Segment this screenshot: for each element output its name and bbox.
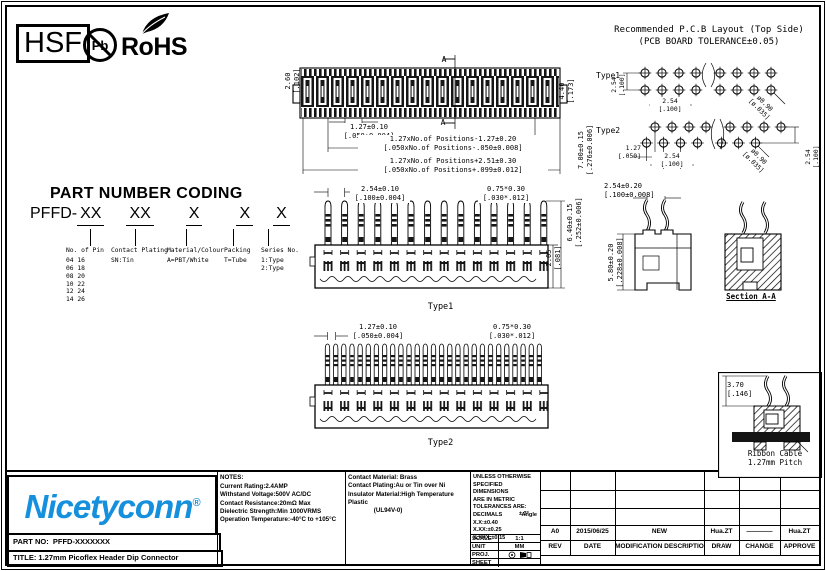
rev-draw-value: Hua.ZT (704, 529, 739, 536)
rev-hline-3 (540, 525, 819, 526)
notes-body: Current Rating:2.4AMP Withstand Voltage:… (220, 483, 346, 525)
legend-col2-lines: SN:Tin (111, 257, 134, 265)
rev-approve-value: Hua.ZT (780, 529, 819, 536)
hsf-logo: HSF (16, 24, 90, 63)
code-seg-packing: X (236, 203, 253, 226)
rev-header-date: DATE (570, 544, 615, 551)
ribbon-dim: 3.70 [.146] (727, 381, 757, 399)
rev-vline-5 (780, 472, 781, 555)
pcb-type2-label: Type2 (596, 126, 630, 136)
title-label: TITLE: (13, 553, 36, 562)
legend-col1-lines: 04 16 06 18 08 20 10 22 12 24 14 26 (66, 257, 85, 304)
code-leader-5 (268, 229, 269, 246)
legend-col4-lines: T=Tube (224, 257, 247, 265)
brand-reg-mark: ® (192, 497, 199, 509)
section-label: Section A-A (716, 292, 786, 301)
type1-pin-dim: 0.75*0.30 [.030*.012] (478, 185, 534, 203)
brand-text: Nicetyconn (25, 488, 193, 525)
part-number-code: PFFD-XXXXXXX (30, 203, 290, 226)
type1-height-dim: 6.40±0.15 [.252±0.006] (566, 195, 584, 250)
code-seg-plating: XX (126, 203, 153, 226)
rev-desc-value: NEW (615, 529, 704, 536)
legend-col3-title: Material/Colour (167, 247, 224, 255)
rev-hline-5 (540, 555, 819, 556)
title-block: Nicetyconn® PART NO: PFFD-XXXXXXX TITLE:… (7, 470, 819, 566)
dim-top-width: 4.40 [.173] (558, 72, 576, 110)
type1-pitch-dim: 2.54±0.10 [.100±0.004] (350, 185, 410, 203)
code-leader-1 (90, 229, 91, 246)
pcb-t2-row-pitch: 2.54 [.100] (804, 142, 820, 172)
section-aa-view (725, 202, 781, 290)
rev-header-rev: REV (540, 544, 570, 551)
brand-logo: Nicetyconn® (9, 477, 215, 533)
type2-pitch-dim: 1.27±0.10 [.050±0.004] (348, 323, 408, 341)
legend-col5-lines: 1:Type 2:Type (261, 257, 284, 273)
dim-total-height: 7.00±0.15 [.276±0.006] (577, 115, 595, 185)
leaf-icon (139, 11, 173, 36)
type2-body (310, 385, 550, 428)
section-top-dim: 2.54±0.20 [.100±0.008] (604, 182, 666, 200)
pcb-title-line2: (PCB BOARD TOLERANCE±0.05) (596, 37, 822, 48)
type1-label: Type1 (418, 302, 463, 312)
code-leader-3 (186, 229, 187, 246)
section-views-drawing (603, 196, 823, 308)
code-leader-4 (233, 229, 234, 246)
code-leader-2 (135, 229, 136, 246)
type2-label: Type2 (418, 438, 463, 448)
pcb-t1-col-pitch: 2.54 [.100] (650, 97, 690, 113)
coding-title: PART NUMBER CODING (50, 185, 243, 203)
legend-col2-title: Contact Plating (111, 247, 168, 255)
rev-date-value: 2015/06/25 (570, 529, 615, 536)
part-no-label: PART NO: (13, 537, 49, 546)
part-no-value: PFFD-XXXXXXX (53, 537, 110, 546)
materials-body: Contact Material: Brass Contact Plating:… (348, 474, 472, 516)
dim-positions-2: 1.27xNo.of Positions+2.51±0.30 [.050xNo.… (358, 157, 548, 175)
legend-col1-title: No. of Pin (66, 247, 104, 255)
rev-header-change: CHANGE (739, 544, 780, 551)
type1-pins (325, 201, 547, 245)
sheet-row: SHEET (470, 558, 540, 567)
title-value: 1.27mm Picoflex Header Dip Connector (38, 553, 178, 562)
code-seg-pins: XX (77, 203, 104, 226)
rev-change-value: ———— (739, 529, 780, 536)
tolerance-header: UNLESS OTHERWISE SPECIFIED DIMENSIONS AR… (473, 474, 537, 512)
type1-body (310, 245, 550, 288)
section-marker-bottom: A (437, 118, 449, 128)
sheet-label: SHEET (470, 559, 499, 567)
ribbon-label: Ribbon Cable 1.27mm Pitch (737, 449, 813, 468)
rev-vline-4 (739, 472, 740, 555)
title-row: TITLE: 1.27mm Picoflex Header Dip Connec… (7, 550, 223, 567)
code-seg-material: X (186, 203, 203, 226)
side-profile-view (617, 196, 691, 290)
type1-body-dim: 2.05 [.081] (545, 244, 563, 272)
col-divider-4 (540, 472, 541, 566)
brand-box: Nicetyconn® (7, 475, 217, 535)
rev-hline-4 (540, 540, 819, 541)
datasheet-page: HSF Pb RoHS (0, 0, 826, 571)
pcb-t2-offset: 1.27 [.050] (613, 144, 641, 160)
type2-drawing (300, 328, 592, 453)
pcb-t1-row-pitch: 2.54 [.100] (610, 70, 626, 100)
code-seg-series: X (273, 203, 290, 226)
rev-hline-2 (540, 508, 819, 509)
notes-header: NOTES: (220, 474, 344, 482)
angle-value: ± 3° (519, 511, 529, 519)
legend-col4-title: Packing (224, 247, 251, 255)
pcb-t2-col-pitch: 2.54 [.100] (652, 152, 692, 168)
type2-pin-dim: 0.75*0.30 [.030*.012] (484, 323, 540, 341)
dim-top-height: 2.60 [.102] (284, 62, 302, 100)
section-height-dim: 5.80±0.20 [.228±0.008] (607, 235, 625, 290)
rev-header-draw: DRAW (704, 544, 739, 551)
decimals-label: DECIMALS (473, 512, 502, 520)
rev-vline-3 (704, 472, 705, 555)
type2-pins (325, 344, 541, 385)
rev-vline-1 (570, 472, 571, 555)
dim-positions-1: 1.27xNo.of Positions-1.27±0.20 [.050xNo.… (358, 135, 548, 153)
legend-col3-lines: A=PBT/White (167, 257, 209, 265)
rev-value: A0 (540, 529, 570, 536)
col-divider-1 (217, 472, 218, 566)
rev-header-approve: APPROVE (780, 544, 819, 551)
legend-col5-title: Series No. (261, 247, 299, 255)
rev-hline-1 (540, 490, 819, 491)
section-marker-top: A (438, 55, 450, 65)
pcb-title-line1: Recommended P.C.B Layout (Top Side) (596, 25, 822, 36)
tolerance-box: UNLESS OTHERWISE SPECIFIED DIMENSIONS AR… (473, 474, 537, 542)
pb-free-icon: Pb (80, 25, 120, 65)
sheet-value (499, 559, 540, 567)
rohs-logo: RoHS (121, 33, 187, 61)
rev-header-desc: MODIFICATION DESCRIPTIO (615, 544, 704, 551)
code-prefix: PFFD- (30, 205, 77, 222)
